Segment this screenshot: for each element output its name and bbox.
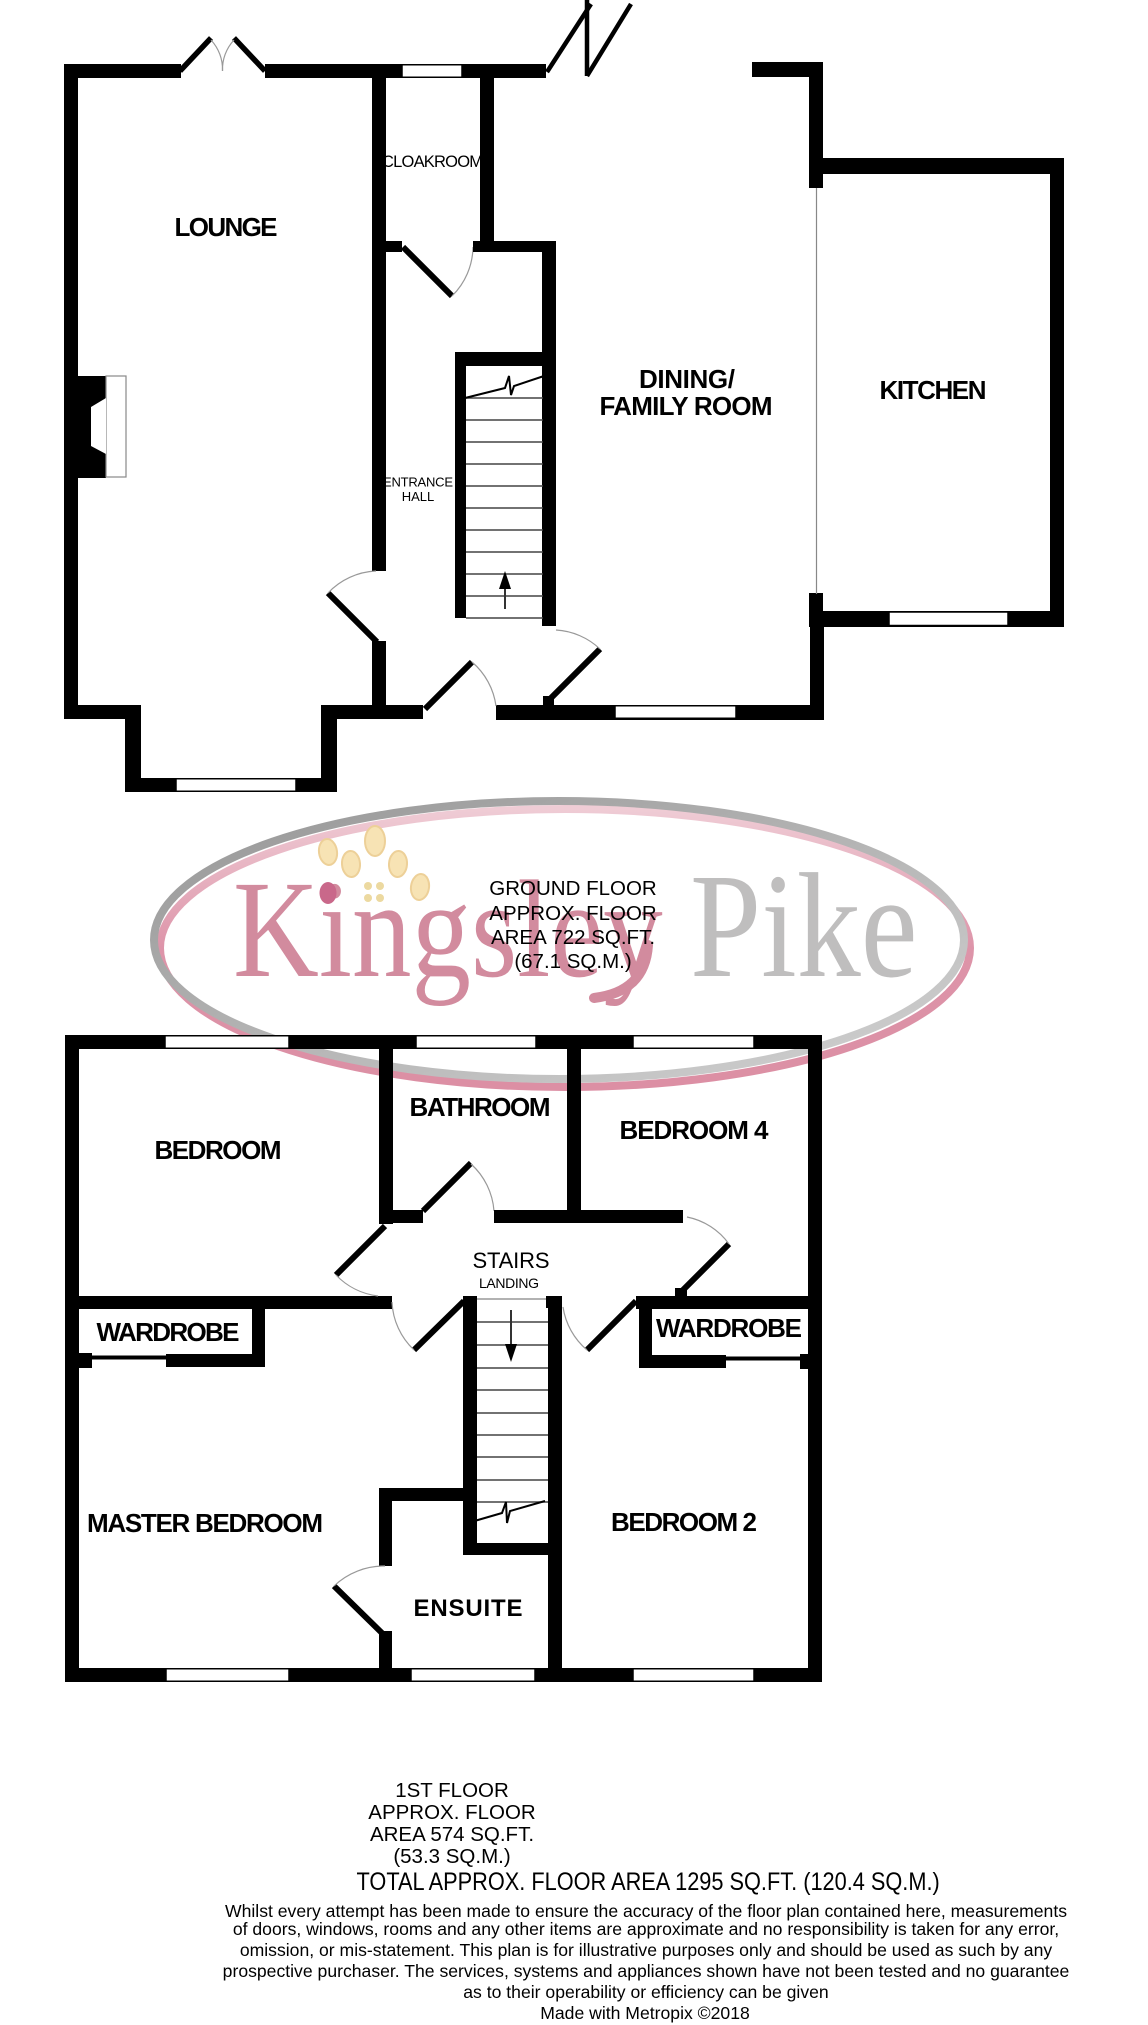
svg-text:AREA 574 SQ.FT.: AREA 574 SQ.FT. xyxy=(370,1823,534,1846)
svg-text:WARDROBE: WARDROBE xyxy=(97,1317,240,1347)
svg-text:Made with Metropix ©2018: Made with Metropix ©2018 xyxy=(540,2003,750,2023)
svg-text:WARDROBE: WARDROBE xyxy=(656,1313,802,1343)
svg-text:prospective purchaser. The ser: prospective purchaser. The services, sys… xyxy=(223,1961,1070,1981)
svg-text:STAIRS: STAIRS xyxy=(473,1248,550,1273)
svg-text:BEDROOM 4: BEDROOM 4 xyxy=(620,1115,770,1145)
svg-text:BATHROOM: BATHROOM xyxy=(410,1092,551,1122)
svg-text:BEDROOM: BEDROOM xyxy=(155,1135,282,1165)
svg-text:KITCHEN: KITCHEN xyxy=(880,375,987,405)
svg-text:APPROX. FLOOR: APPROX. FLOOR xyxy=(368,1801,535,1824)
svg-text:omission, or mis-statement. Th: omission, or mis-statement. This plan is… xyxy=(240,1940,1053,1960)
svg-text:as to their operability or eff: as to their operability or efficiency ca… xyxy=(463,1982,828,2002)
svg-text:HALL: HALL xyxy=(402,489,435,504)
svg-text:MASTER BEDROOM: MASTER BEDROOM xyxy=(87,1508,323,1538)
svg-text:LANDING: LANDING xyxy=(479,1275,539,1291)
svg-text:DINING/: DINING/ xyxy=(639,364,735,394)
svg-text:1ST FLOOR: 1ST FLOOR xyxy=(395,1779,509,1802)
svg-text:Whilst every attempt has been: Whilst every attempt has been made to en… xyxy=(225,1901,1067,1921)
svg-text:(53.3 SQ.M.): (53.3 SQ.M.) xyxy=(393,1845,510,1868)
svg-text:FAMILY ROOM: FAMILY ROOM xyxy=(600,391,773,421)
svg-text:of doors, windows, rooms and a: of doors, windows, rooms and any other i… xyxy=(233,1919,1059,1939)
svg-text:APPROX. FLOOR: APPROX. FLOOR xyxy=(489,902,656,925)
svg-text:TOTAL APPROX. FLOOR AREA 1295: TOTAL APPROX. FLOOR AREA 1295 SQ.FT. (12… xyxy=(357,1868,940,1896)
svg-text:GROUND FLOOR: GROUND FLOOR xyxy=(489,877,656,900)
svg-text:ENSUITE: ENSUITE xyxy=(414,1595,523,1622)
svg-text:CLOAKROOM: CLOAKROOM xyxy=(382,153,483,171)
svg-text:ENTRANCE: ENTRANCE xyxy=(383,475,453,490)
svg-text:Pike: Pike xyxy=(690,844,918,1010)
svg-text:BEDROOM 2: BEDROOM 2 xyxy=(611,1507,757,1537)
svg-text:(67.1 SQ.M.): (67.1 SQ.M.) xyxy=(514,950,631,973)
svg-text:LOUNGE: LOUNGE xyxy=(175,212,278,242)
svg-text:AREA 722 SQ.FT.: AREA 722 SQ.FT. xyxy=(491,926,655,949)
